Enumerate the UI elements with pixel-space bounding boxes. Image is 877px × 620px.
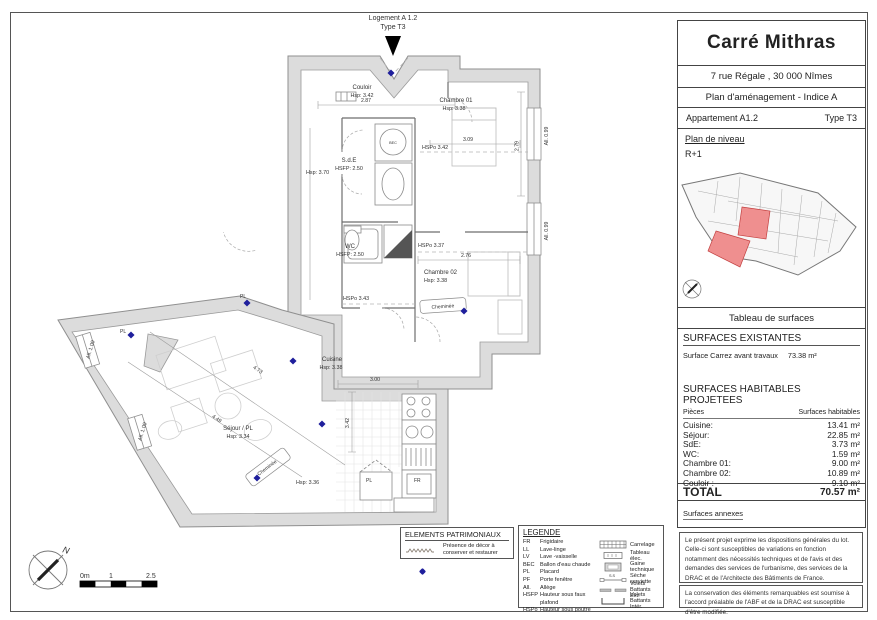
svg-text:Hsp: 3.42: Hsp: 3.42 bbox=[350, 93, 373, 99]
duct-icon bbox=[599, 562, 627, 572]
apartment-type: Type T3 bbox=[825, 113, 857, 123]
title-block: Carré Mithras 7 rue Régale , 30 000 Nîme… bbox=[677, 20, 866, 528]
hob bbox=[402, 394, 436, 420]
patrimonial-title: ELEMENTS PATRIMONIAUX bbox=[405, 530, 509, 541]
svg-text:Hsp: 3.70: Hsp: 3.70 bbox=[306, 170, 329, 176]
svg-text:HSPo 3.43: HSPo 3.43 bbox=[343, 296, 369, 302]
existing-surfaces-title: SURFACES EXISTANTES bbox=[683, 329, 860, 346]
carrez-value: 73.38 m² bbox=[788, 351, 817, 360]
svg-text:HSPo 3.42: HSPo 3.42 bbox=[422, 145, 448, 151]
svg-text:3.09: 3.09 bbox=[463, 137, 473, 143]
svg-text:Hsp: 3.36: Hsp: 3.36 bbox=[296, 480, 319, 486]
legend-symbols: Carrelage Tableau élec. Gaine technique … bbox=[599, 539, 659, 615]
annex-label: Surfaces annexes bbox=[683, 509, 743, 520]
decor-zigzag-icon bbox=[405, 547, 439, 556]
svg-text:1: 1 bbox=[109, 573, 113, 580]
svg-text:Couloir: Couloir bbox=[352, 85, 371, 91]
svg-text:Hsp: 3.38: Hsp: 3.38 bbox=[424, 278, 447, 284]
conservation-note: La conservation des éléments remarquable… bbox=[679, 585, 863, 608]
plan-header-line2: Type T3 bbox=[380, 24, 405, 31]
svg-text:Cuisine: Cuisine bbox=[322, 357, 343, 363]
project-title: Carré Mithras bbox=[678, 21, 865, 66]
key-plan-compass bbox=[683, 280, 701, 298]
total-label: TOTAL bbox=[683, 485, 722, 499]
svg-text:3.42: 3.42 bbox=[345, 418, 351, 428]
legend-abbreviations: FRFrigidaire LLLave-linge LVLave -vaisse… bbox=[523, 539, 595, 615]
level-value: R+1 bbox=[685, 149, 702, 159]
closet-fr bbox=[394, 498, 434, 512]
svg-text:Hsp: 3.38: Hsp: 3.38 bbox=[442, 106, 465, 112]
shutters-int-icon bbox=[599, 597, 627, 606]
svg-text:2.76: 2.76 bbox=[461, 253, 471, 259]
key-plan bbox=[678, 161, 865, 307]
carrez-label: Surface Carrez avant travaux bbox=[683, 351, 778, 360]
patrimonial-box: ELEMENTS PATRIMONIAUX Présence de décor … bbox=[400, 527, 514, 559]
washbasin bbox=[382, 168, 404, 200]
svg-text:N: N bbox=[61, 544, 71, 556]
general-note: Le présent projet exprime les dispositio… bbox=[679, 532, 863, 583]
svg-text:HSPo 3.37: HSPo 3.37 bbox=[418, 243, 444, 249]
svg-text:PL: PL bbox=[366, 478, 372, 484]
level-plan-section: Plan de niveau R+1 bbox=[678, 129, 865, 308]
projected-surfaces: SURFACES HABITABLES PROJETEES Pièces Sur… bbox=[678, 376, 865, 483]
svg-text:Hsp: 3.34: Hsp: 3.34 bbox=[226, 434, 249, 440]
total-value: 70.57 m² bbox=[820, 487, 860, 498]
svg-text:S.S: S.S bbox=[609, 574, 616, 578]
legend-box: LEGENDE FRFrigidaire LLLave-linge LVLave… bbox=[518, 525, 664, 608]
patrimonial-symbol bbox=[405, 543, 439, 579]
drawing-sheet: Logement A 1.2 Type T3 bbox=[0, 0, 877, 620]
scale-bar: 0m 1 2.5 bbox=[80, 573, 157, 587]
entrance-arrow bbox=[385, 36, 401, 56]
elec-panel-icon bbox=[599, 551, 627, 560]
project-address: 7 rue Régale , 30 000 Nîmes bbox=[678, 66, 865, 88]
svg-text:HSFP: 2.50: HSFP: 2.50 bbox=[336, 252, 364, 258]
apartment-row: Appartement A1.2 Type T3 bbox=[678, 108, 865, 129]
plan-header-line1: Logement A 1.2 bbox=[369, 15, 418, 22]
patrimonial-item: Présence de décor à conserver et restaur… bbox=[443, 543, 509, 579]
closet-pl bbox=[360, 472, 392, 500]
svg-text:PL: PL bbox=[120, 329, 126, 335]
col-room-header: Pièces bbox=[683, 409, 704, 416]
projected-surfaces-title: SURFACES HABITABLES PROJETEES bbox=[683, 376, 860, 409]
svg-text:FR: FR bbox=[414, 478, 421, 484]
svg-text:All. 0.99: All. 0.99 bbox=[544, 222, 550, 241]
tile-icon bbox=[599, 540, 627, 549]
col-area-header: Surfaces habitables bbox=[799, 409, 860, 416]
svg-text:Chambre 02: Chambre 02 bbox=[424, 270, 458, 276]
svg-text:S.d.E: S.d.E bbox=[342, 158, 357, 164]
document-title: Plan d'aménagement - Indice A bbox=[678, 88, 865, 108]
patrimonial-dot-icon bbox=[418, 568, 425, 575]
level-plan-label: Plan de niveau bbox=[685, 134, 745, 144]
svg-text:PL: PL bbox=[240, 294, 246, 300]
svg-text:HSFP: 2.50: HSFP: 2.50 bbox=[335, 166, 363, 172]
apartment-id: Appartement A1.2 bbox=[686, 113, 758, 123]
surfaces-table-title: Tableau de surfaces bbox=[678, 308, 865, 329]
shutters-ext-icon bbox=[599, 586, 627, 594]
svg-text:0m: 0m bbox=[80, 573, 90, 580]
svg-text:BEC: BEC bbox=[389, 141, 397, 145]
svg-text:WC: WC bbox=[345, 244, 356, 250]
north-arrow: N bbox=[29, 544, 71, 589]
legend-title: LEGENDE bbox=[523, 528, 659, 537]
svg-text:Chambre 01: Chambre 01 bbox=[439, 98, 473, 104]
total-row: TOTAL 70.57 m² bbox=[678, 483, 865, 501]
svg-text:Hsp: 3.38: Hsp: 3.38 bbox=[319, 365, 342, 371]
svg-text:Séjour / PL: Séjour / PL bbox=[223, 426, 253, 432]
towel-radiator-icon: S.S bbox=[599, 573, 627, 584]
svg-text:All. 0.99: All. 0.99 bbox=[544, 127, 550, 146]
svg-text:2.79: 2.79 bbox=[515, 141, 521, 151]
existing-surfaces: SURFACES EXISTANTES Surface Carrez avant… bbox=[678, 329, 865, 376]
annex-surfaces: Surfaces annexes bbox=[678, 501, 865, 518]
svg-text:3.00: 3.00 bbox=[370, 377, 380, 383]
svg-text:2.5: 2.5 bbox=[146, 573, 156, 580]
